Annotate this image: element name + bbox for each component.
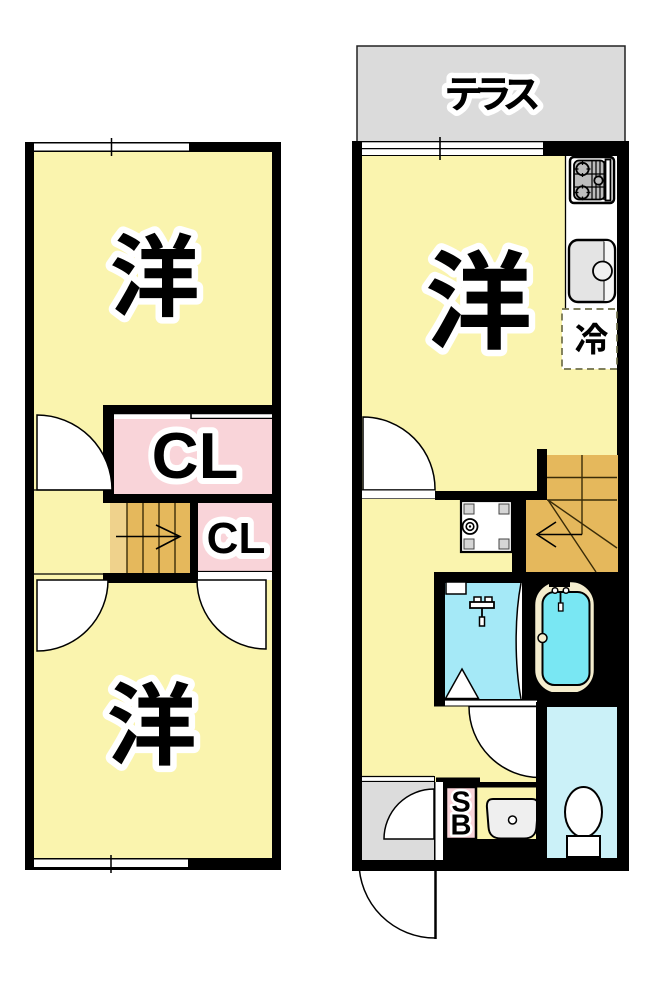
svg-text:CL: CL [207, 514, 266, 563]
svg-text:CL: CL [152, 419, 239, 492]
svg-text:B: B [451, 810, 472, 842]
